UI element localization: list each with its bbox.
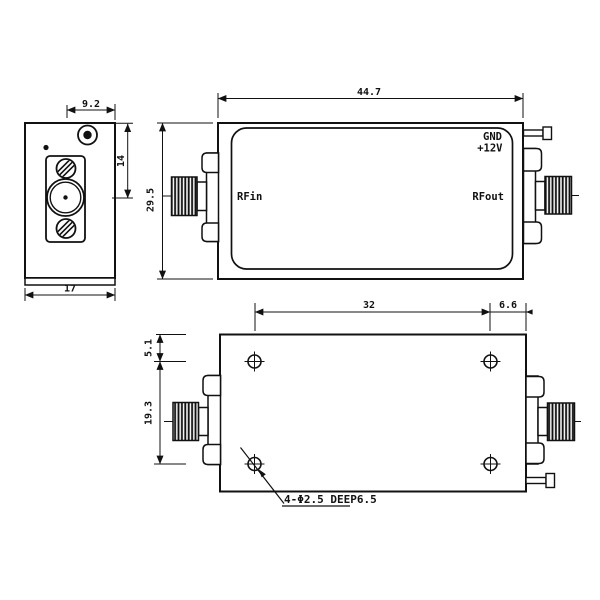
engineering-drawing-canvas: 9.2 14 17 — [0, 0, 600, 600]
center-pin-dot — [63, 195, 67, 199]
label-12v: +12V — [477, 143, 503, 155]
bottom-view: 32 6.6 5.1 19.3 4-Φ2.5 DEEP6.5 — [144, 300, 582, 506]
dim-label: 5.1 — [144, 339, 155, 357]
led-indicator-dot — [43, 145, 48, 150]
sma-connector-rf-out — [524, 149, 580, 244]
sma-connector-left-bottom — [164, 376, 221, 465]
dim-label: 19.3 — [144, 401, 155, 425]
dim-hole-span: 32 — [255, 300, 490, 331]
dim-label: 32 — [363, 300, 375, 311]
sma-connector-rf-in — [163, 153, 219, 242]
dc-pin-top — [524, 127, 552, 140]
connector-threads — [545, 177, 572, 215]
label-rf-out: RFout — [472, 191, 504, 203]
sma-connector-right-bottom — [526, 376, 581, 464]
dim-label: 9.2 — [82, 99, 100, 110]
label-rf-in: RFin — [237, 191, 262, 203]
screw-top-icon — [56, 158, 77, 179]
dim-top-to-hole: 5.1 — [144, 335, 187, 362]
dim-label: 29.5 — [146, 188, 157, 212]
label-gnd: GND — [483, 131, 502, 143]
rf-module-drawing: 9.2 14 17 — [0, 0, 600, 600]
connector-threads — [548, 403, 575, 441]
dim-label: 17 — [64, 284, 76, 295]
hole-note-text: 4-Φ2.5 DEEP6.5 — [284, 493, 377, 506]
screw-bottom-icon — [56, 218, 77, 239]
top-view: GND +12V RFin RFout 44.7 29.5 — [146, 87, 580, 279]
front-view: 9.2 14 17 — [25, 99, 133, 301]
connector-threads — [172, 177, 198, 216]
bottom-body-outline — [220, 335, 526, 492]
top-lid-outline — [232, 128, 513, 269]
dim-label: 44.7 — [357, 87, 381, 98]
dc-feedthrough-front — [78, 126, 97, 145]
dim-hole-to-edge: 6.6 — [483, 300, 532, 331]
dim-label: 14 — [116, 155, 127, 167]
dc-pin-bottom — [526, 474, 555, 488]
sma-connector-front — [46, 156, 85, 242]
dim-label: 6.6 — [499, 300, 517, 311]
dim-top-width: 44.7 — [218, 87, 523, 118]
dim-front-width: 17 — [25, 284, 115, 302]
dim-front-offset: 9.2 — [67, 99, 115, 120]
connector-threads — [173, 403, 199, 441]
